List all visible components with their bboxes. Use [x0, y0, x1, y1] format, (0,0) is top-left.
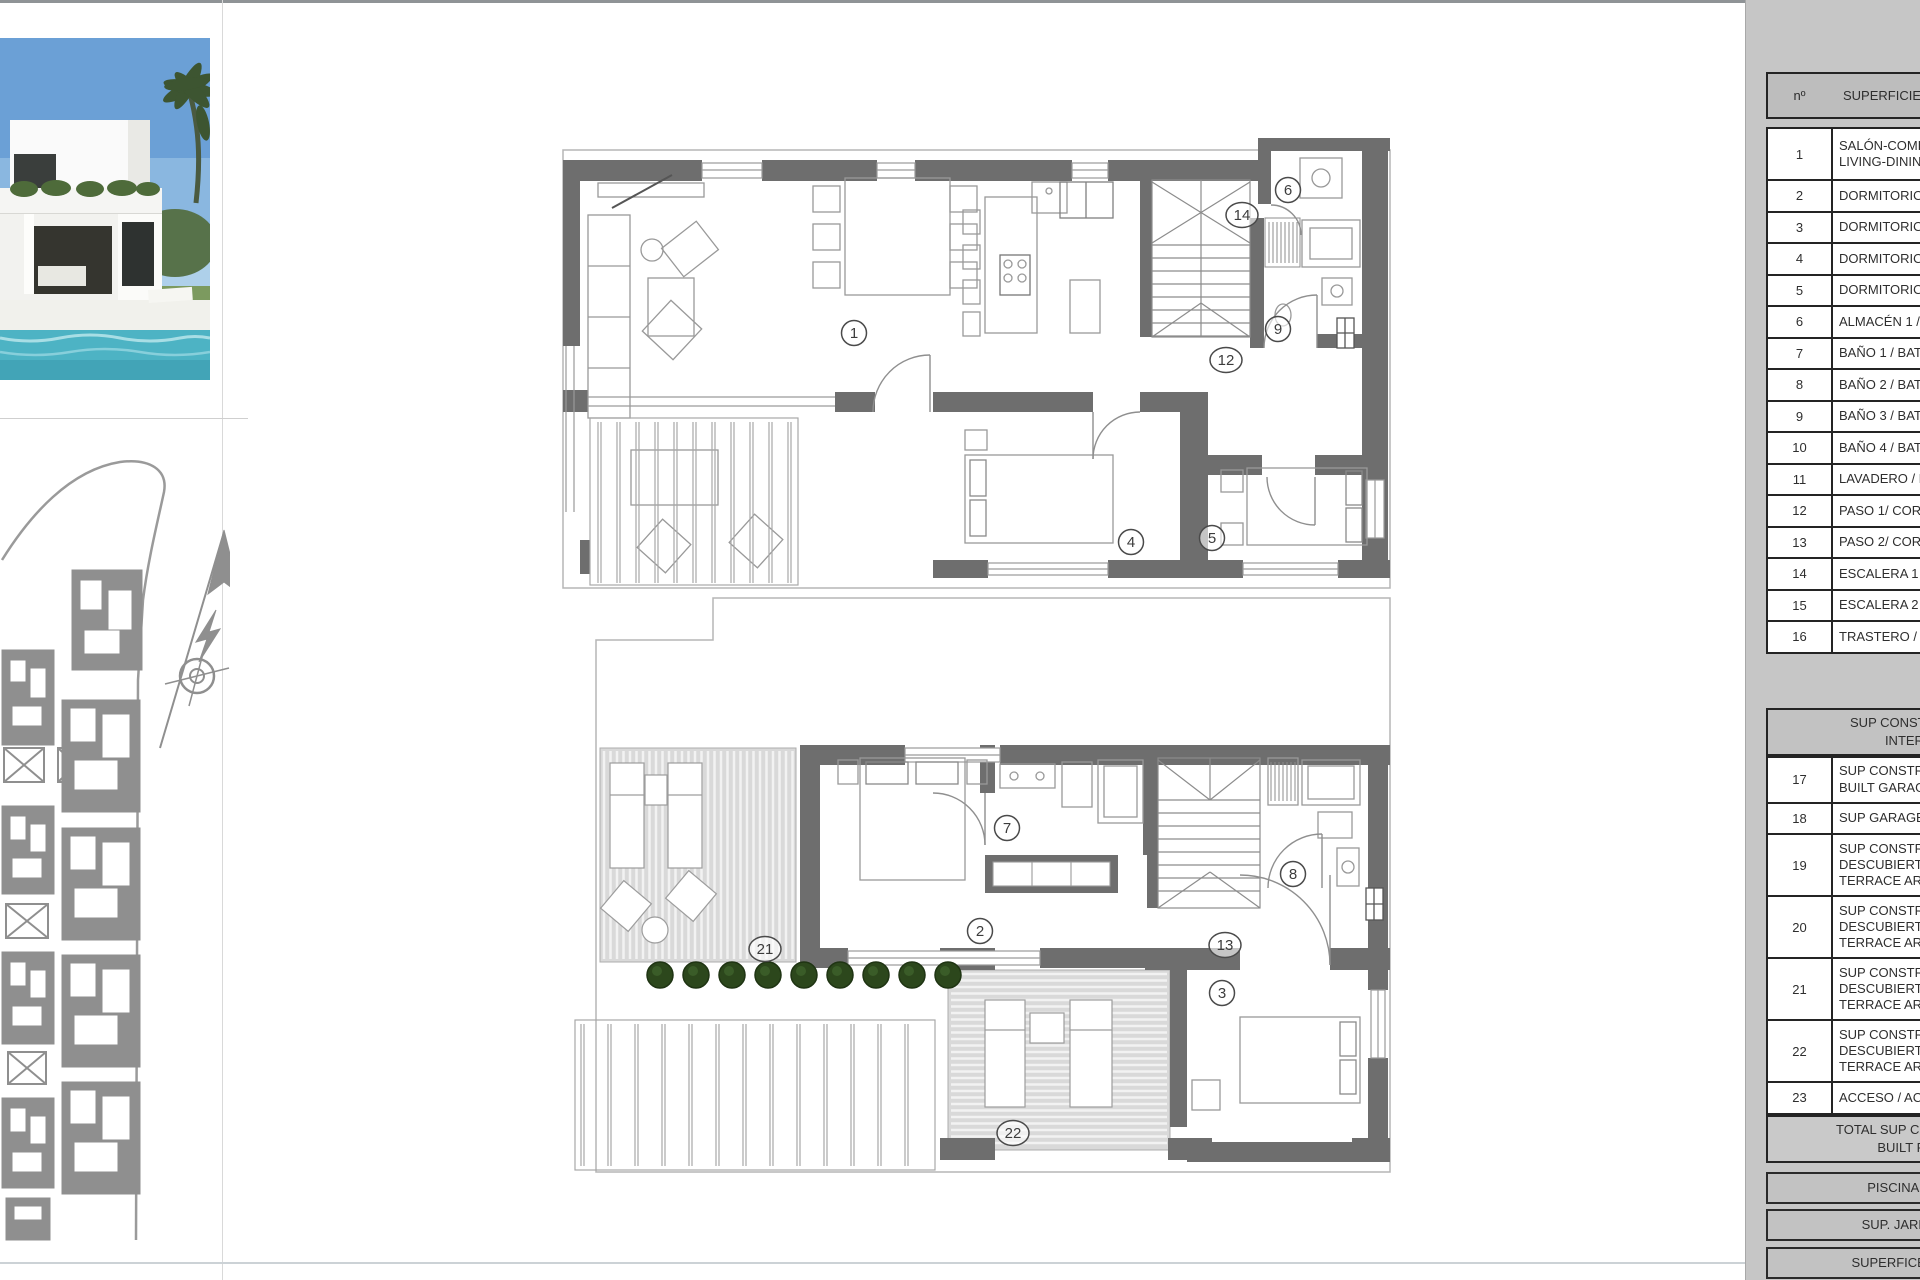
legend-row-label: DORMITORIO [1833, 181, 1920, 211]
legend-row-number: 4 [1768, 244, 1833, 274]
legend-row: 6ALMACÉN 1 / [1766, 307, 1920, 339]
room-label-9: 9 [1266, 317, 1291, 342]
legend-row-number: 20 [1768, 897, 1833, 957]
svg-text:2: 2 [976, 923, 984, 940]
legend-row-number: 21 [1768, 959, 1833, 1019]
legend-row: 1SALÓN-COMELIVING-DININ [1766, 127, 1920, 181]
legend-row-number: 12 [1768, 496, 1833, 526]
floor-plan-ground: 145691214 [555, 125, 1400, 595]
legend-row-label: SUP CONSTRUDESCUBIERTATERRACE ARE [1833, 1021, 1920, 1081]
room-label-7: 7 [995, 816, 1020, 841]
floor-plan-first: 2378132122 [570, 590, 1395, 1190]
legend-header-no: nº [1768, 88, 1831, 103]
svg-text:9: 9 [1274, 321, 1282, 338]
room-label-22: 22 [997, 1121, 1029, 1146]
site-units [2, 570, 142, 1240]
legend-row: 12PASO 1/ CORR [1766, 496, 1920, 528]
svg-text:8: 8 [1289, 866, 1297, 883]
svg-text:4: 4 [1127, 534, 1135, 551]
svg-text:21: 21 [757, 941, 774, 958]
legend-row-label: BAÑO 3 / BAT [1833, 402, 1920, 432]
room-label-1: 1 [842, 321, 867, 346]
legend-row: 7BAÑO 1 / BAT [1766, 339, 1920, 371]
room-label-14: 14 [1226, 203, 1258, 228]
legend-row-number: 10 [1768, 433, 1833, 463]
legend-footer-jardin: SUP. JARDÍN / GA [1766, 1209, 1920, 1241]
room-label-2: 2 [968, 919, 993, 944]
legend-row-label: DORMITORIO [1833, 276, 1920, 306]
room-label-3: 3 [1210, 981, 1235, 1006]
legend-row: 13PASO 2/ CORR [1766, 528, 1920, 560]
legend-section-header: SUP CONSTRUIDA ININTERIOR [1766, 708, 1920, 756]
legend-row-label: ESCALERA 2 / [1833, 591, 1920, 621]
legend-row-label: SUP CONSTRUDESCUBIERTATERRACE ARE [1833, 897, 1920, 957]
legend-row-label: SUP CONSTRUBUILT GARAG [1833, 758, 1920, 802]
legend-row-number: 22 [1768, 1021, 1833, 1081]
villa-building [0, 120, 162, 300]
legend-footer-parcela: SUPERFICE PARCEL [1766, 1247, 1920, 1279]
legend-row-number: 9 [1768, 402, 1833, 432]
legend-row-label: ALMACÉN 1 / [1833, 307, 1920, 337]
legend-row: 21SUP CONSTRUDESCUBIERTATERRACE ARE [1766, 959, 1920, 1021]
room-label-4: 4 [1119, 530, 1144, 555]
legend-row: 2DORMITORIO [1766, 181, 1920, 213]
legend-row: 4DORMITORIO [1766, 244, 1920, 276]
legend-row: 15ESCALERA 2 / [1766, 591, 1920, 623]
legend-row: 9BAÑO 3 / BAT [1766, 402, 1920, 434]
svg-text:6: 6 [1284, 182, 1292, 199]
legend-row-label: ACCESO / ACC [1833, 1083, 1920, 1113]
legend-row: 3DORMITORIO [1766, 213, 1920, 245]
villa-photo [0, 38, 210, 380]
legend-row: 19SUP CONSTRUDESCUBIERTATERRACE ARE [1766, 835, 1920, 897]
legend-row-number: 2 [1768, 181, 1833, 211]
room-label-8: 8 [1281, 862, 1306, 887]
svg-text:22: 22 [1005, 1125, 1022, 1142]
legend-row: 14ESCALERA 1 / [1766, 559, 1920, 591]
terrace-21 [600, 748, 796, 962]
legend-row-label: LAVADERO / L [1833, 465, 1920, 495]
room-label-13: 13 [1209, 933, 1241, 958]
legend-row: 17SUP CONSTRUBUILT GARAG [1766, 756, 1920, 804]
legend-panel: nº SUPERFICIE Ú 1SALÓN-COMELIVING-DININ2… [1745, 0, 1920, 1280]
room-label-6: 6 [1276, 178, 1301, 203]
legend-footer-piscina: PISCINA / SWIM [1766, 1172, 1920, 1204]
legend-row-number: 11 [1768, 465, 1833, 495]
legend-row: 22SUP CONSTRUDESCUBIERTATERRACE ARE [1766, 1021, 1920, 1083]
svg-text:1: 1 [850, 325, 858, 342]
legend-row-number: 8 [1768, 370, 1833, 400]
legend-row-number: 14 [1768, 559, 1833, 589]
legend-row: 11LAVADERO / L [1766, 465, 1920, 497]
legend-row: 16TRASTERO / S [1766, 622, 1920, 654]
terrace-22 [948, 970, 1170, 1150]
legend-header-label: SUPERFICIE Ú [1831, 88, 1920, 103]
legend-row-number: 17 [1768, 758, 1833, 802]
svg-text:5: 5 [1208, 530, 1216, 547]
legend-row-number: 15 [1768, 591, 1833, 621]
legend-row: 20SUP CONSTRUDESCUBIERTATERRACE ARE [1766, 897, 1920, 959]
legend-row: 5DORMITORIO [1766, 276, 1920, 308]
site-plan [0, 455, 230, 1245]
legend-row: 23ACCESO / ACC [1766, 1083, 1920, 1115]
legend-table: nº SUPERFICIE Ú 1SALÓN-COMELIVING-DININ2… [1766, 72, 1920, 1279]
staircase [1158, 758, 1260, 908]
sheet-top-border [0, 0, 1920, 3]
room-label-21: 21 [749, 937, 781, 962]
room-label-5: 5 [1200, 526, 1225, 551]
pergola-slats [575, 1020, 935, 1170]
entry-door-icon [1366, 888, 1383, 920]
legend-row-label: SALÓN-COMELIVING-DININ [1833, 129, 1920, 179]
svg-text:13: 13 [1217, 937, 1234, 954]
legend-row-label: BAÑO 1 / BAT [1833, 339, 1920, 369]
architectural-plan-sheet: 145691214 [0, 0, 1920, 1280]
legend-row-number: 23 [1768, 1083, 1833, 1113]
garden-bushes [647, 962, 961, 988]
legend-row-number: 1 [1768, 129, 1833, 179]
room-label-12: 12 [1210, 348, 1242, 373]
pergola-slats [590, 418, 798, 585]
legend-row-label: PASO 2/ CORR [1833, 528, 1920, 558]
svg-text:14: 14 [1234, 207, 1251, 224]
legend-row-number: 19 [1768, 835, 1833, 895]
legend-row-label: SUP GARAGE/ [1833, 804, 1920, 834]
legend-row-number: 5 [1768, 276, 1833, 306]
sheet-bottom-border [0, 1262, 1745, 1264]
legend-row-label: BAÑO 2 / BAT [1833, 370, 1920, 400]
legend-row-label: SUP CONSTRUDESCUBIERTATERRACE ARE [1833, 959, 1920, 1019]
legend-row: 8BAÑO 2 / BAT [1766, 370, 1920, 402]
legend-row-label: BAÑO 4 / BAT [1833, 433, 1920, 463]
legend-header-row: nº SUPERFICIE Ú [1766, 72, 1920, 119]
legend-row-label: DORMITORIO [1833, 213, 1920, 243]
legend-row-number: 3 [1768, 213, 1833, 243]
north-arrow-icon [160, 530, 230, 748]
legend-row-label: DORMITORIO [1833, 244, 1920, 274]
legend-row: 10BAÑO 4 / BAT [1766, 433, 1920, 465]
legend-total-row: TOTAL SUP CONSTRUIDABUILT PRIVA [1766, 1115, 1920, 1163]
photo-divider [0, 418, 248, 419]
legend-row: 18SUP GARAGE/ [1766, 804, 1920, 836]
legend-row-number: 13 [1768, 528, 1833, 558]
legend-row-number: 18 [1768, 804, 1833, 834]
legend-row-label: ESCALERA 1 / [1833, 559, 1920, 589]
svg-text:7: 7 [1003, 820, 1011, 837]
entry-door-icon [1337, 318, 1354, 348]
legend-row-label: SUP CONSTRUDESCUBIERTATERRACE ARE [1833, 835, 1920, 895]
legend-row-label: TRASTERO / S [1833, 622, 1920, 652]
legend-row-number: 16 [1768, 622, 1833, 652]
legend-row-number: 6 [1768, 307, 1833, 337]
svg-text:3: 3 [1218, 985, 1226, 1002]
legend-row-label: PASO 1/ CORR [1833, 496, 1920, 526]
legend-row-number: 7 [1768, 339, 1833, 369]
svg-text:12: 12 [1218, 352, 1235, 369]
